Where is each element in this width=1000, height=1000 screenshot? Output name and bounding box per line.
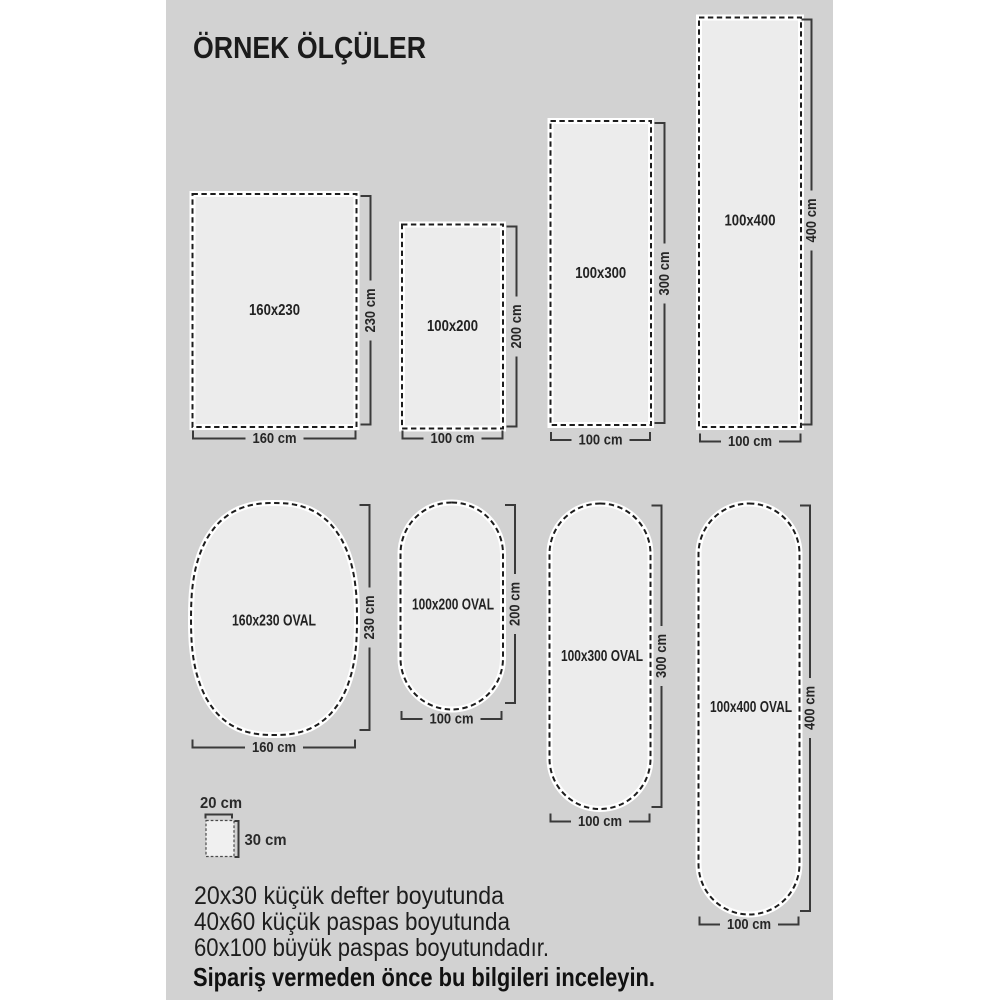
svg-text:20 cm: 20 cm <box>200 795 242 812</box>
svg-text:100 cm: 100 cm <box>579 432 623 449</box>
svg-text:160 cm: 160 cm <box>252 739 296 756</box>
svg-text:100 cm: 100 cm <box>431 430 475 447</box>
svg-text:200 cm: 200 cm <box>508 305 525 349</box>
svg-text:160x230 OVAL: 160x230 OVAL <box>232 613 316 630</box>
svg-text:100 cm: 100 cm <box>430 711 474 728</box>
svg-text:200 cm: 200 cm <box>507 582 524 626</box>
svg-text:30 cm: 30 cm <box>245 832 287 849</box>
svg-text:20x30 küçük defter boyutunda: 20x30 küçük defter boyutunda <box>194 882 504 910</box>
svg-text:40x60 küçük paspas boyutunda: 40x60 küçük paspas boyutunda <box>194 908 510 936</box>
svg-text:Sipariş vermeden önce bu bilgi: Sipariş vermeden önce bu bilgileri incel… <box>193 962 655 992</box>
svg-text:230 cm: 230 cm <box>361 596 378 640</box>
svg-text:160x230: 160x230 <box>249 302 300 319</box>
svg-text:100x400 OVAL: 100x400 OVAL <box>710 699 792 716</box>
svg-text:300 cm: 300 cm <box>653 634 670 678</box>
svg-text:100 cm: 100 cm <box>727 916 771 933</box>
svg-text:400 cm: 400 cm <box>802 686 819 730</box>
svg-text:300 cm: 300 cm <box>656 252 673 296</box>
svg-text:100x300 OVAL: 100x300 OVAL <box>561 648 643 665</box>
svg-text:100x200: 100x200 <box>427 318 478 335</box>
svg-text:160 cm: 160 cm <box>253 430 297 447</box>
svg-text:100x400: 100x400 <box>725 213 776 230</box>
svg-text:ÖRNEK ÖLÇÜLER: ÖRNEK ÖLÇÜLER <box>193 30 426 65</box>
svg-text:60x100 büyük paspas boyutundad: 60x100 büyük paspas boyutundadır. <box>194 934 549 962</box>
svg-text:400 cm: 400 cm <box>803 199 820 243</box>
svg-text:100 cm: 100 cm <box>578 813 622 830</box>
svg-text:230 cm: 230 cm <box>362 289 379 333</box>
svg-text:100x300: 100x300 <box>575 265 626 282</box>
svg-text:100x200 OVAL: 100x200 OVAL <box>412 597 494 614</box>
svg-text:100 cm: 100 cm <box>728 433 772 450</box>
